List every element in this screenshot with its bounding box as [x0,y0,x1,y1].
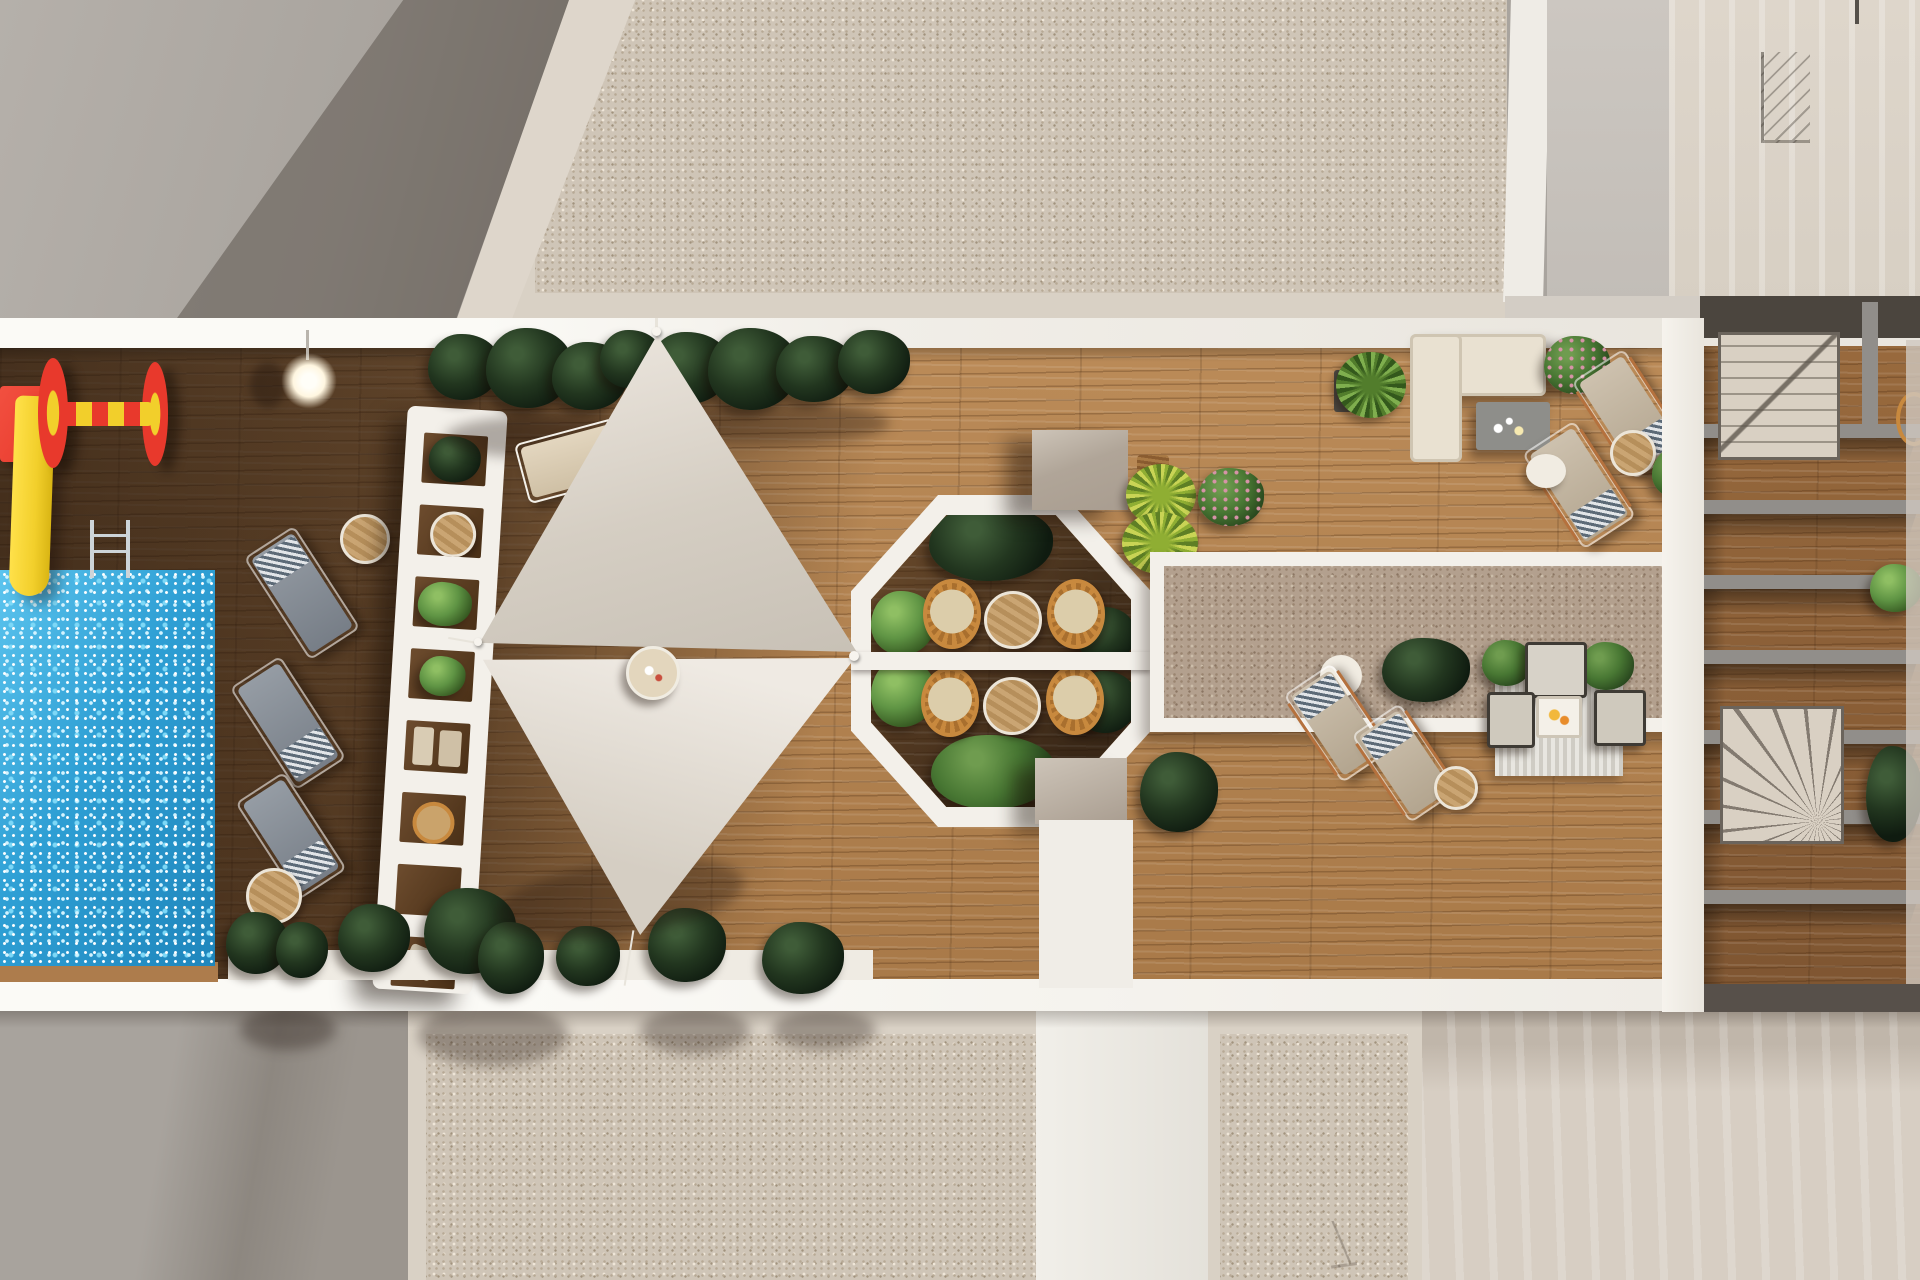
corner-sofa-return [1410,334,1462,462]
bush-below-carpet [1140,752,1218,832]
sail-pole [474,638,482,646]
rooftop-terrace-render [0,0,1920,1280]
roof-slab-top-right-cream [1669,0,1920,302]
stair-doodle [1761,52,1810,143]
roof-slab-bottom-right [1422,1002,1920,1280]
pavilion-bush [929,505,1053,581]
ladder-rung [94,550,126,553]
dining-chair [1046,665,1104,735]
concrete-cube-bottom [1035,758,1127,824]
lounge-coffee-table [1536,696,1582,738]
lounge-armchair [1487,692,1535,748]
roof-slab-gravel-top [505,0,1507,324]
lounge-armchair [1594,690,1646,746]
roof-walkway-bottom [1036,1008,1208,1280]
pergola-beam [1700,650,1920,664]
dining-table [984,591,1042,649]
lounge-bush [1580,642,1634,690]
roof-mark [1855,0,1859,24]
side-table [1610,430,1656,476]
dining-chair [1047,579,1105,649]
side-table [340,514,390,564]
play-spinner [30,358,180,474]
deck-fascia-bottom [0,979,1665,1011]
sail-pole [849,651,859,661]
gravel-texture [535,0,1507,293]
sail-side-table [626,646,680,700]
plant-below [417,581,474,628]
dining-table [983,677,1041,735]
planter-bush [338,904,410,972]
ladder-rung [94,534,126,537]
planter-bush [762,922,844,994]
gravel-texture [1220,1034,1408,1280]
planter-bush [276,922,328,978]
private-terraces-zone [1700,296,1920,1012]
ladder-rail [126,520,130,578]
pavilion-divider [851,652,1151,670]
pergola-opening [404,720,471,774]
plant-shadow [772,1010,876,1050]
roof-slab-top-right-gray [1547,0,1669,302]
roof-walkway-top-2 [1503,0,1551,302]
swimming-pool [0,570,215,966]
plant-shadow [418,1004,568,1066]
plant-shadow [240,1008,336,1050]
tropical-plant [1382,638,1470,702]
pergola-opening [399,792,466,846]
stair-pergola-spiral [1720,706,1844,844]
pergola-beam-vertical [1862,302,1878,426]
dining-chair [923,579,981,649]
walkway-strip-below-cube [1039,820,1133,988]
deck-walkway-right [1662,318,1704,1012]
lamp-glow [281,353,337,409]
roof-slab-gravel-bottom-right [1208,1008,1422,1280]
gravel-texture [426,1034,1036,1280]
tray-table [1526,454,1566,488]
spinner-axle [60,402,152,426]
pergola-opening [417,504,484,558]
pink-flower-bush [1198,468,1264,526]
side-table [1434,766,1478,810]
chair-below [411,801,455,845]
pergola-opening [412,576,479,630]
roof-slab-bottom-left [0,1008,408,1280]
zone-bottom-shade [1700,984,1920,1012]
plant-below [418,655,466,698]
zone-right-sliver [1906,340,1920,984]
chair-below [412,726,434,765]
planter-bush [838,330,910,394]
chair-below [438,730,462,767]
concrete-cube-top [1032,430,1128,510]
table-below [429,510,478,558]
green-palm [1336,352,1406,418]
deck-fascia-top [0,318,1920,350]
pergola-beam [1700,890,1920,904]
ladder-rail [90,520,94,578]
pergola-opening [408,648,475,702]
lounge-sofa [1525,642,1587,698]
pergola-beam [1700,500,1920,514]
pool-ladder [88,520,132,578]
dining-chair [921,667,979,737]
sail-pole [652,327,661,336]
plant-shadow [640,1008,750,1054]
stair-pergola [1718,332,1840,460]
